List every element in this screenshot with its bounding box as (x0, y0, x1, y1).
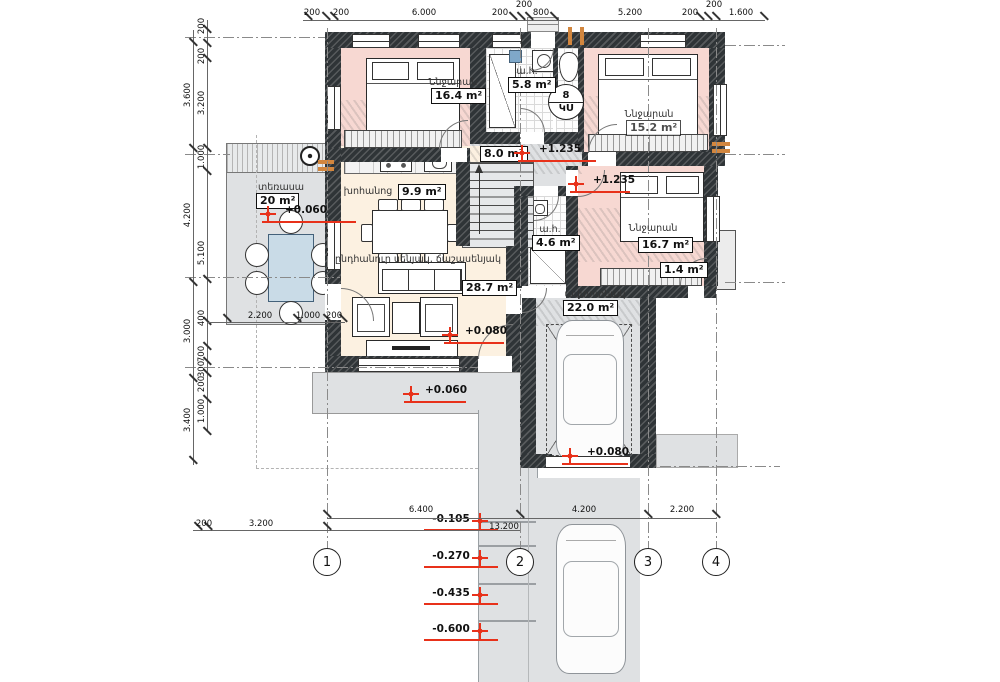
car-icon (556, 320, 624, 460)
grill-icon (300, 146, 320, 166)
dimension-label: 4.200 (183, 203, 193, 227)
elevation-underline (424, 566, 498, 568)
bedroom1-area: 16.4 m² (431, 88, 486, 104)
terrace-chair-icon (245, 243, 269, 267)
dimension-label: 200 (706, 0, 722, 10)
floor-plan: 1 2 3 4 8 ԿՍ Ննջարան 16.4 m² ա.հ. 5.8 m²… (0, 0, 1000, 682)
elevation-underline (562, 463, 628, 465)
door-opening (441, 148, 467, 162)
window (352, 34, 390, 48)
chair-icon (361, 224, 373, 242)
chair-icon (401, 199, 421, 211)
dimension-label: 400 (197, 310, 207, 326)
terrace-chair-icon (245, 271, 269, 295)
axis-bubble-2: 2 (506, 548, 534, 576)
axis-bubble-1: 1 (313, 548, 341, 576)
terrace-table-icon (268, 234, 314, 302)
elevation-value: +0.080 (587, 446, 629, 458)
roof-overhang-line (256, 135, 257, 468)
axis-line-h (660, 466, 780, 467)
dimension-line (193, 530, 520, 531)
pillow-icon (666, 176, 699, 194)
bedroom2-name: Ննջարան (625, 109, 674, 120)
dimension-label: 200 (304, 8, 320, 18)
window (640, 34, 686, 48)
elevation-value: +0.060 (425, 384, 467, 396)
utility-marker (712, 149, 730, 153)
elevation-value: -0.435 (432, 587, 470, 599)
dining-table-icon (372, 210, 448, 254)
stair-up-arrow-icon (475, 164, 483, 173)
wall (456, 162, 470, 246)
entry-door-opening (531, 32, 555, 48)
bath2-name: ա.հ. (539, 224, 560, 235)
axis-line-h (725, 282, 785, 283)
dimension-label: 2.200 (248, 311, 272, 321)
axis-line-4 (716, 28, 717, 549)
entry-step (527, 24, 559, 32)
dimension-label: 5.100 (197, 241, 207, 265)
door-opening (588, 152, 616, 166)
sofa-icon (378, 262, 466, 294)
dimension-line (207, 322, 345, 323)
dimension-label: 1.000 (197, 399, 207, 423)
dimension-label: 200 (492, 8, 508, 18)
elevation-underline (444, 342, 504, 344)
axis-number: 1 (323, 555, 331, 570)
axis-bubble-4: 4 (702, 548, 730, 576)
dimension-label: 1.000 (197, 145, 207, 169)
bath2-area: 4.6 m² (532, 235, 580, 251)
axis-number: 3 (644, 555, 652, 570)
wall (520, 298, 536, 466)
shower-icon (530, 248, 566, 284)
elevation-underline (570, 191, 630, 193)
roof-overhang-line (256, 468, 478, 469)
elevation-underline (262, 221, 356, 223)
car-icon (556, 524, 626, 674)
elevation-underline (424, 639, 498, 641)
axis-bubble-3: 3 (634, 548, 662, 576)
elevation-value: +0.060 (285, 204, 327, 216)
garage-name: ավտոտնակ (564, 289, 625, 300)
living-area: 28.7 m² (462, 280, 517, 296)
kitchen-area: 9.9 m² (398, 184, 446, 200)
elevation-marker-icon (445, 330, 455, 340)
utility-marker (568, 27, 572, 45)
window (418, 34, 460, 48)
dimension-label: 5.200 (618, 8, 642, 18)
bath1-name: ա.հ. (516, 66, 537, 77)
dimension-tick (712, 11, 721, 20)
dimension-label: 2.200 (670, 505, 694, 515)
axis-line-h (185, 37, 325, 38)
elevation-underline (518, 160, 596, 162)
elevation-marker-icon (565, 451, 575, 461)
kitchen-name: խոհանոց (344, 186, 393, 197)
room-tag-code: ԿՍ (559, 103, 573, 115)
bath1-area: 5.8 m² (508, 77, 556, 93)
dimension-label: 1.600 (729, 8, 753, 18)
bedroom3-area: 16.7 m² (638, 237, 693, 253)
axis-line-h (725, 154, 785, 155)
axis-number: 4 (712, 555, 720, 570)
dimension-label: 300 (197, 361, 207, 377)
axis-line-2 (520, 28, 521, 549)
room-tag-number: 8 (563, 90, 570, 102)
chair-icon (378, 199, 398, 211)
chair-icon (424, 199, 444, 211)
bedroom1-name: Ննջարան (429, 77, 478, 88)
elevation-value: +0.080 (465, 325, 507, 337)
door-opening (688, 286, 704, 298)
pillow-icon (605, 58, 644, 76)
elevation-value: -0.105 (432, 513, 470, 525)
dimension-label: 1.000 (296, 311, 320, 321)
elevation-value: +1.235 (593, 174, 635, 186)
dimension-label: 700 (197, 346, 207, 362)
elevation-marker-icon (475, 626, 485, 636)
dimension-label: 13.200 (489, 522, 519, 532)
dimension-label: 4.200 (572, 505, 596, 515)
elevation-value: -0.600 (432, 623, 470, 635)
dimension-label: 6.000 (412, 8, 436, 18)
dimension-label: 200 (333, 8, 349, 18)
dimension-tick (760, 11, 769, 20)
axis-line-h (185, 367, 478, 368)
axis-line-1 (327, 28, 328, 549)
elevation-underline (404, 401, 466, 403)
elevation-marker-icon (475, 590, 485, 600)
pillow-icon (652, 58, 691, 76)
coffee-table-icon (392, 302, 420, 334)
utility-marker (580, 27, 584, 45)
axis-number: 2 (516, 555, 524, 570)
balcony-area: 1.4 m² (660, 262, 708, 278)
window (327, 86, 341, 130)
elevation-marker-icon (517, 148, 527, 158)
pillow-icon (372, 62, 409, 80)
dimension-line (193, 30, 194, 465)
dimension-line (327, 518, 716, 519)
dimension-label: 3.200 (249, 519, 273, 529)
elevation-marker-icon (263, 209, 273, 219)
dimension-label: 200 (516, 0, 532, 10)
elevation-marker-icon (475, 553, 485, 563)
dimension-label: 3.400 (183, 408, 193, 432)
window (492, 34, 522, 48)
window (358, 358, 460, 372)
bedroom3-name: Ննջարան (629, 223, 678, 234)
dimension-label: 6.400 (409, 505, 433, 515)
bedroom2-area: 15.2 m² (626, 120, 681, 136)
dimension-label: 3.600 (183, 83, 193, 107)
dimension-line (207, 20, 208, 432)
living-name: ընդհանուր սենյակ, ճաշասենյակ (335, 254, 501, 265)
elevation-marker-icon (406, 389, 416, 399)
terrace-name: տեռասա (258, 182, 304, 193)
garage-area: 22.0 m² (563, 300, 618, 316)
dimension-label: 800 (533, 8, 549, 18)
utility-marker (318, 167, 334, 171)
elevation-underline (424, 603, 498, 605)
side-path-floor (656, 434, 738, 468)
dimension-label: 3.000 (183, 319, 193, 343)
elevation-value: -0.270 (432, 550, 470, 562)
dimension-label: 200 (326, 311, 342, 321)
dimension-label: 200 (682, 8, 698, 18)
elevation-marker-icon (571, 179, 581, 189)
axis-line-h (725, 45, 785, 46)
utility-marker (712, 142, 730, 146)
stair-direction-line (479, 172, 480, 234)
door-opening (534, 186, 558, 196)
tv-icon (392, 346, 430, 350)
dimension-label: 3.200 (197, 91, 207, 115)
dimension-label: 200 (197, 376, 207, 392)
dimension-label: 200 (197, 18, 207, 34)
axis-line-3 (648, 28, 649, 549)
dimension-label: 200 (197, 48, 207, 64)
dimension-label: 200 (196, 519, 212, 529)
dimension-line (303, 20, 765, 21)
window (706, 196, 720, 242)
elevation-value: +1.235 (539, 143, 581, 155)
utility-marker (318, 160, 334, 164)
